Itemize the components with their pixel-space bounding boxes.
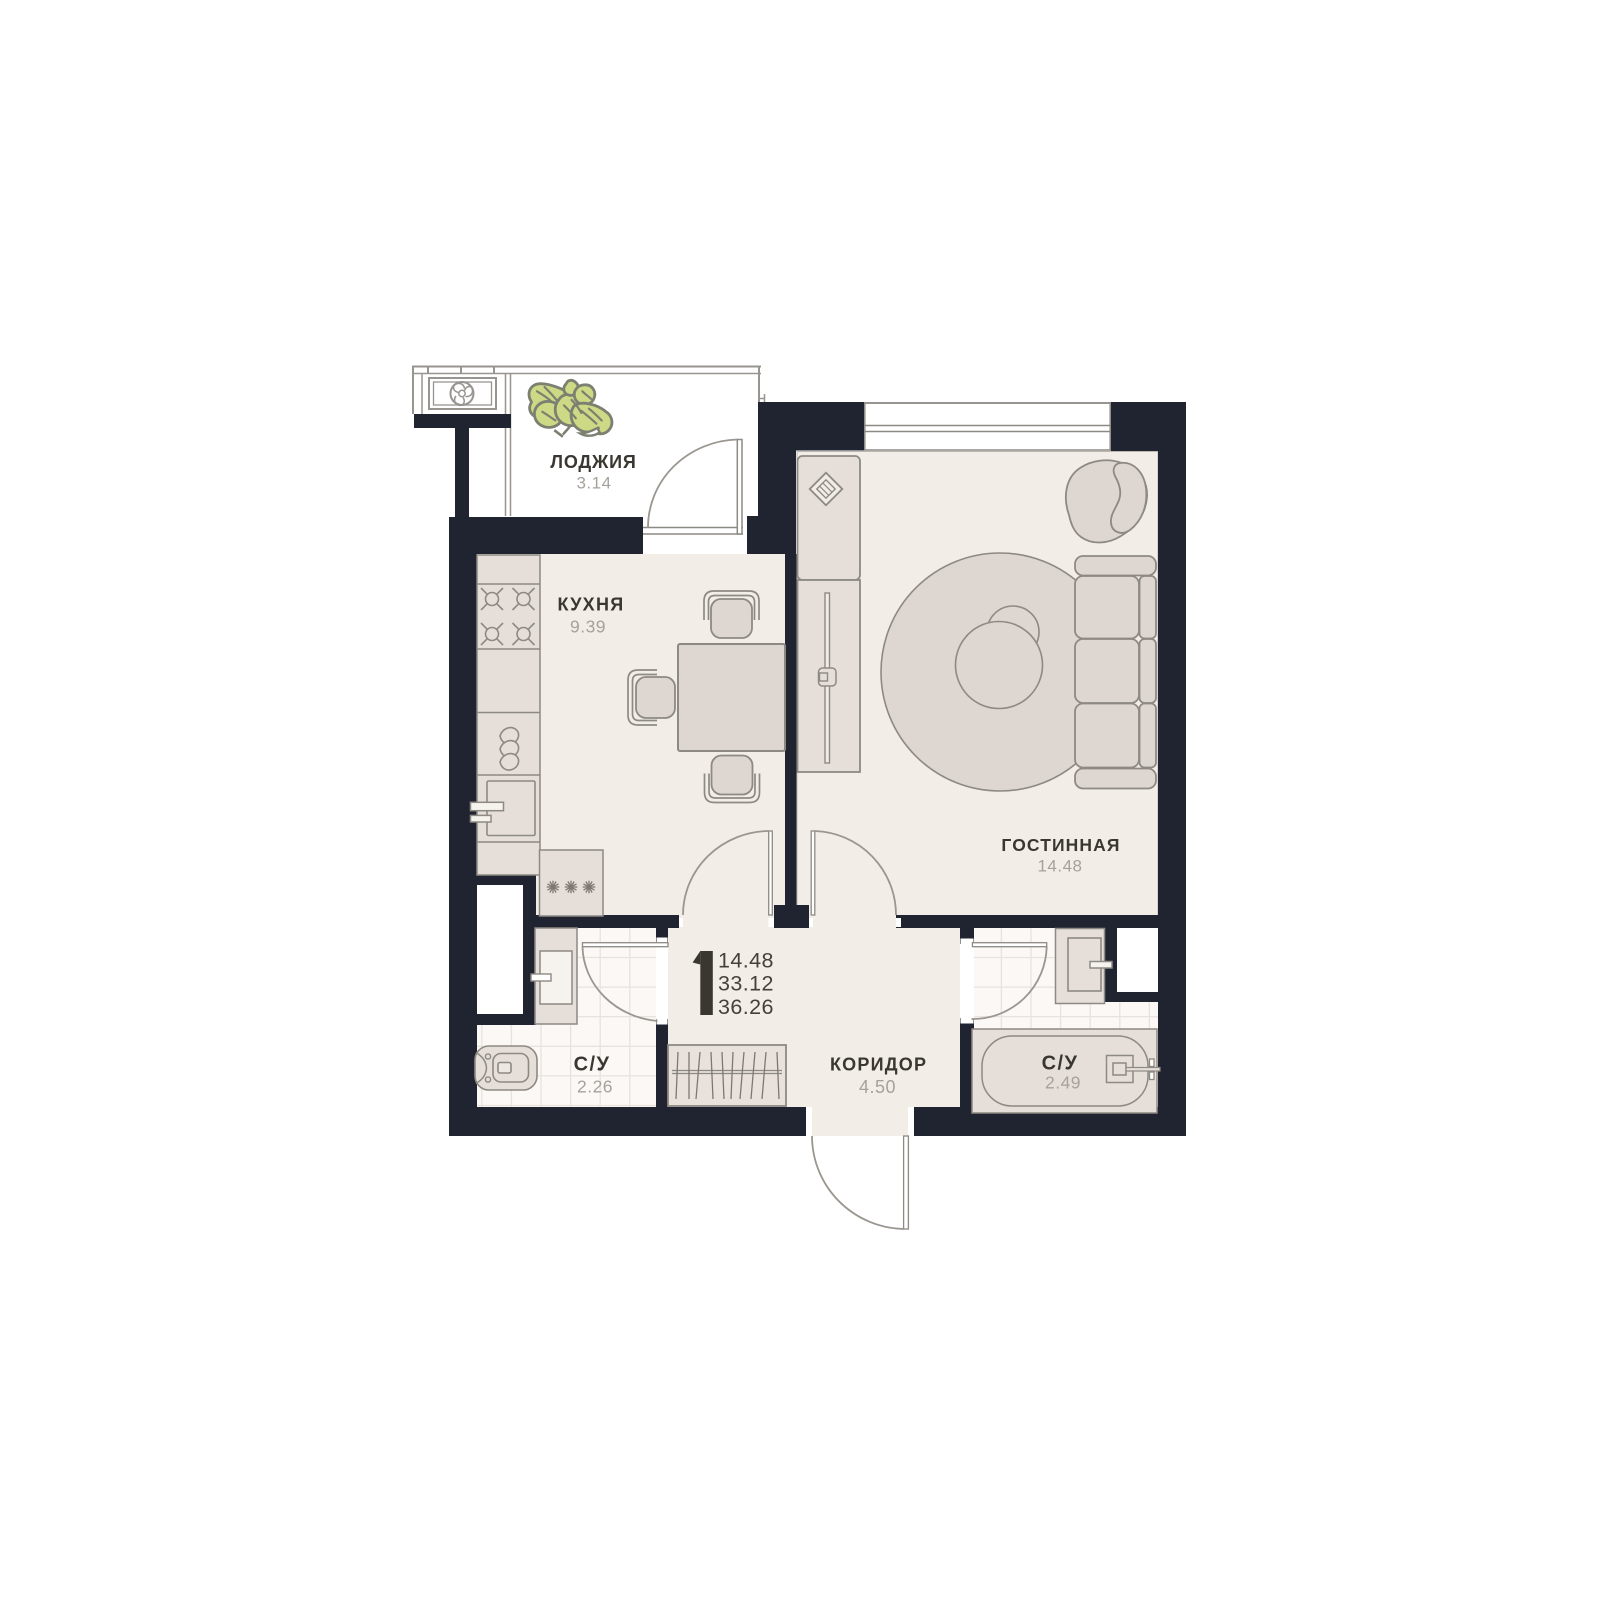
svg-text:ГОСТИННАЯ: ГОСТИННАЯ: [1001, 835, 1120, 855]
svg-text:9.39: 9.39: [570, 617, 606, 637]
svg-text:3.14: 3.14: [576, 474, 611, 493]
svg-text:4.50: 4.50: [859, 1077, 896, 1097]
svg-text:С/У: С/У: [1042, 1053, 1079, 1075]
svg-text:33.12: 33.12: [718, 972, 774, 996]
svg-text:КУХНЯ: КУХНЯ: [557, 595, 624, 615]
svg-text:КОРИДОР: КОРИДОР: [830, 1055, 927, 1075]
svg-text:2.26: 2.26: [577, 1077, 613, 1097]
svg-text:14.48: 14.48: [718, 949, 774, 973]
svg-text:С/У: С/У: [574, 1054, 611, 1076]
svg-text:2.49: 2.49: [1045, 1073, 1081, 1093]
svg-text:36.26: 36.26: [718, 995, 774, 1019]
svg-text:14.48: 14.48: [1037, 857, 1082, 876]
svg-text:ЛОДЖИЯ: ЛОДЖИЯ: [550, 452, 636, 472]
